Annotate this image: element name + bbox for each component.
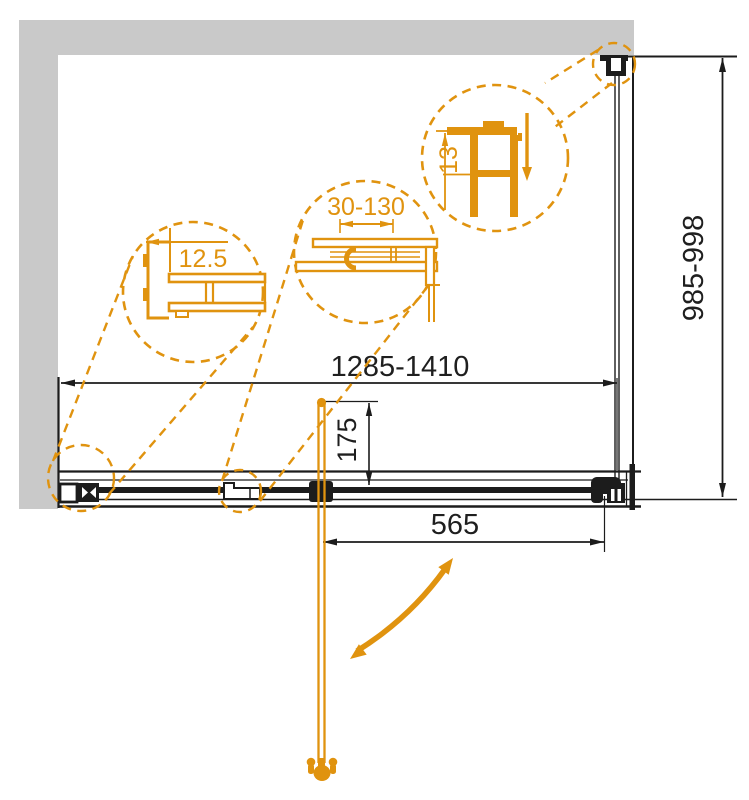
leader-lines-left bbox=[53, 256, 253, 494]
detail-right-dim: 13 bbox=[435, 131, 470, 210]
track-middle-bracket bbox=[224, 483, 260, 499]
wall-left bbox=[19, 20, 58, 509]
handle-knob bbox=[307, 758, 338, 781]
detail-middle-profile bbox=[296, 239, 440, 322]
shower-enclosure-drawing: 1285-1410 985-998 175 565 bbox=[0, 0, 749, 800]
detail-circle-middle: 30-130 bbox=[294, 181, 440, 323]
dim-height: 985-998 bbox=[678, 58, 726, 497]
track-left-wall-profile bbox=[60, 484, 77, 502]
detail-right-arrow-icon bbox=[522, 113, 532, 181]
enclosure-frame bbox=[58, 55, 737, 510]
track-roller-block bbox=[309, 481, 333, 502]
track-left-bracket bbox=[78, 483, 99, 502]
detail-left-label: 12.5 bbox=[179, 245, 228, 273]
detail-circle-right: 13 bbox=[422, 85, 568, 231]
right-frame-bottom-profile bbox=[630, 464, 636, 510]
dim-handle-height-label: 175 bbox=[332, 417, 362, 462]
detail-left-dim: 12.5 bbox=[146, 228, 228, 273]
leader-lines-right bbox=[545, 50, 612, 130]
dim-height-label: 985-998 bbox=[678, 215, 710, 321]
detail-middle-dim bbox=[340, 219, 393, 233]
handle-bar bbox=[319, 403, 325, 763]
dim-door-width: 565 bbox=[323, 496, 605, 552]
dim-width-label: 1285-1410 bbox=[331, 351, 470, 383]
door-swing-arrow-icon bbox=[350, 558, 453, 659]
detail-middle-label: 30-130 bbox=[327, 193, 405, 221]
dim-door-width-label: 565 bbox=[431, 509, 479, 541]
detail-right-label: 13 bbox=[435, 146, 463, 174]
detail-circle-left: 12.5 bbox=[123, 222, 265, 362]
bottom-track bbox=[58, 464, 737, 510]
wall-top bbox=[19, 20, 634, 55]
technical-drawing-page: 1285-1410 985-998 175 565 bbox=[0, 0, 749, 800]
corner-wall-profile bbox=[600, 55, 628, 76]
